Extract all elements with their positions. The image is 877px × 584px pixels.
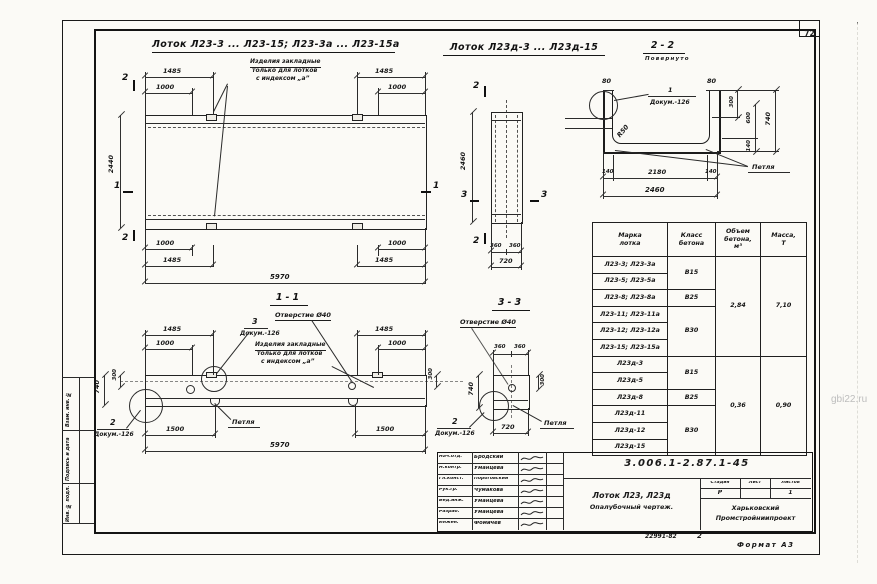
drawing-line [425, 72, 426, 115]
mark-cell: Л23-12; Л23-12а [593, 323, 668, 340]
detail-circle [589, 91, 618, 120]
staff-role: Нач.отд. [439, 455, 471, 460]
drawing-line [700, 498, 811, 499]
drawing-line [357, 330, 358, 375]
drawing-line [437, 496, 563, 497]
mark-cell: Л23д-5 [593, 373, 668, 390]
embed-plate [206, 114, 217, 121]
drawing-line [717, 151, 779, 152]
dim-360: 360 [494, 345, 505, 351]
drawing-line [145, 335, 213, 336]
col-header-mark: Марка лотка [593, 223, 668, 257]
loop-label: Петля [544, 419, 567, 427]
drawing-line [700, 488, 811, 489]
staff-name: Уманцева [474, 466, 517, 471]
dim-300: 300 [541, 374, 547, 385]
dim-1000: 1000 [156, 240, 174, 247]
drawing-line [425, 228, 426, 284]
drawing-line [437, 463, 563, 464]
embed-note-line2: только для лотков [252, 67, 317, 75]
dim-140: 140 [747, 140, 753, 151]
mass-cell: 7,10 [761, 257, 807, 357]
drawing-line [563, 478, 811, 479]
drawing-line [133, 230, 135, 241]
title-section-2-2-note: Повернуто [645, 56, 690, 63]
drawing-line [521, 479, 543, 482]
drawing-line [521, 512, 543, 515]
drawing-line [478, 375, 479, 408]
drawing-line [148, 127, 425, 128]
drawing-line [145, 249, 192, 250]
drawing-line [737, 90, 738, 118]
drawing-line [521, 501, 543, 504]
drawing-line [493, 433, 528, 434]
staff-role: Разраб. [439, 510, 471, 515]
hole-label: Отверстие Ø40 [275, 311, 331, 321]
drawing-line [120, 115, 121, 228]
sheet-number: 72 [804, 29, 814, 38]
drawing-line [484, 233, 486, 244]
stamp-inv-podl: Инв. № подл. [66, 486, 72, 522]
embed-plate [352, 223, 363, 230]
section-mark-2: 2 [473, 82, 479, 91]
drawing-line [357, 266, 425, 267]
drawing-line [145, 266, 213, 267]
mark-cell: Л23д-11 [593, 406, 668, 423]
signature-scribble [520, 455, 544, 462]
dim-740: 740 [765, 112, 772, 126]
dim-2180: 2180 [648, 169, 666, 176]
drawing-line [521, 523, 543, 526]
drawing-line [484, 86, 486, 97]
section-mark-1: 1 [114, 182, 120, 191]
staff-name: Бродский [474, 455, 517, 460]
drawing-line [378, 93, 425, 94]
table-row: Л23д-3В150,360,90 [593, 356, 807, 373]
staff-role: Вед.инж. [439, 499, 471, 504]
drawing-line [521, 222, 522, 270]
signature-scribble [520, 510, 544, 517]
drawing-line [123, 191, 133, 193]
drawing-line [603, 196, 717, 197]
drawing-line [748, 172, 790, 173]
dim-300: 300 [113, 369, 119, 380]
mark-cell: Л23-8; Л23-8а [593, 290, 668, 307]
col-header-volume: Объем бетона, м³ [716, 223, 761, 257]
dim-140: 140 [705, 170, 716, 176]
dim-1485: 1485 [163, 257, 181, 264]
loop-label: Петля [232, 418, 255, 426]
mark-cell: Л23-15; Л23-15а [593, 339, 668, 356]
section-mark-3: 3 [461, 191, 467, 200]
dim-1485: 1485 [375, 68, 393, 75]
doc-ref: Докум.-126 [650, 99, 690, 107]
class-cell: В25 [668, 290, 716, 307]
drawing-line [470, 200, 479, 202]
staff-role: Гл.конст. [439, 477, 471, 482]
sheet-label: Лист [741, 481, 769, 486]
drawing-line [145, 77, 213, 78]
mark-cell: Л23д-8 [593, 389, 668, 406]
drawing-line [436, 375, 437, 387]
drawing-line [145, 398, 425, 399]
sheets-value: 1 [771, 490, 810, 496]
drawing-line [491, 267, 521, 268]
dim-5970: 5970 [270, 274, 289, 281]
dim-1485: 1485 [163, 326, 181, 333]
drawing-line [437, 474, 563, 475]
drawing-line [145, 349, 192, 350]
dim-360: 360 [514, 345, 525, 351]
dim-1485: 1485 [375, 326, 393, 333]
title-section-1-1: 1-1 [270, 293, 308, 306]
stamp-vzam-inv: Взам. инв. № [66, 381, 72, 427]
volume-cell: 0,36 [716, 356, 761, 456]
concrete-table: Марка лотка Класс бетона Объем бетона, м… [592, 222, 807, 456]
drawing-line [145, 451, 425, 452]
drawing-line [603, 178, 717, 179]
drawing-line [213, 330, 214, 375]
drawing-type: Опалубочный чертеж. [565, 504, 698, 510]
embed-note-line2: только для лотков [257, 350, 322, 358]
table-row: Л23-3; Л23-3аВ152,847,10 [593, 257, 807, 274]
mark-cell: Л23-5; Л23-5а [593, 273, 668, 290]
drawing-line [145, 93, 192, 94]
drawing-line [775, 90, 776, 152]
dim-140: 140 [602, 170, 613, 176]
drawing-line [378, 249, 425, 250]
doc-ref: Докум.-126 [94, 431, 134, 439]
drawing-line [357, 72, 358, 115]
dim-740: 740 [94, 380, 101, 394]
drawing-line [511, 351, 512, 357]
drawing-line [355, 435, 425, 436]
dim-740: 740 [468, 382, 475, 396]
drawing-line [437, 507, 563, 508]
drawing-line [517, 115, 518, 222]
drawing-line [145, 123, 425, 124]
section-mark-1: 1 [433, 182, 439, 191]
drawing-line [79, 377, 80, 523]
staff-name: Чумакова [474, 488, 517, 493]
drawing-line [521, 468, 543, 471]
hole-circle [186, 385, 195, 394]
stage-value: Р [701, 490, 739, 496]
drawing-line [62, 377, 94, 378]
doc-ref: Докум.-126 [435, 430, 475, 438]
drawing-line [145, 219, 425, 220]
product-title: Лоток Л23, Л23д [565, 492, 698, 500]
col-header-mass: Масса, Т [761, 223, 807, 257]
dim-80: 80 [602, 78, 611, 85]
drawing-line [62, 430, 94, 431]
signature-scribble [520, 466, 544, 473]
org-name-line2: Промстройниипроект [700, 515, 811, 521]
class-cell: В15 [668, 356, 716, 389]
callout-number: 2 [452, 418, 458, 426]
drawing-line [495, 115, 496, 222]
embed-plate [206, 223, 217, 230]
sheets-label: Листов [771, 481, 810, 486]
section-mark-3: 3 [541, 191, 547, 200]
drawing-line [357, 335, 425, 336]
drawing-line [145, 435, 215, 436]
embed-note-line3: с индексом „а” [261, 358, 314, 366]
drawing-line [506, 249, 507, 255]
drawing-line [437, 428, 471, 429]
format-label: Формат А3 [737, 541, 795, 550]
hole-circle [508, 384, 516, 392]
callout-number: 2 [110, 419, 116, 427]
drawing-line [717, 90, 779, 91]
dim-300: 300 [429, 368, 435, 379]
title-section-2-2: 2-2 [643, 41, 685, 54]
drawing-line [378, 349, 425, 350]
dim-720: 720 [501, 424, 515, 431]
dim-1000: 1000 [388, 240, 406, 247]
title-section-3-3: 3-3 [492, 298, 530, 311]
dim-1000: 1000 [156, 84, 174, 91]
class-cell: В15 [668, 257, 716, 290]
drawing-line [192, 345, 193, 375]
dim-1000: 1000 [388, 84, 406, 91]
mass-cell: 0,90 [761, 356, 807, 456]
drawing-line [528, 350, 529, 375]
mark-cell: Л23д-12 [593, 422, 668, 439]
staff-role: Н.контр. [439, 466, 471, 471]
callout-number: 3 [252, 318, 258, 326]
drawing-line [700, 478, 701, 530]
staff-role: Инжен. [439, 521, 471, 526]
section-mark-2: 2 [473, 237, 479, 246]
drawing-line [755, 104, 756, 152]
sheet-number-box: 72 [799, 20, 820, 37]
drawing-line [472, 112, 473, 222]
staff-name: Фомичев [474, 521, 517, 526]
signature-scribble [520, 521, 544, 528]
stage-label: Стадия [701, 481, 739, 486]
dim-1500: 1500 [166, 426, 184, 433]
title-view-d: Лоток Л23д-3 ... Л23д-15 [443, 43, 605, 56]
dim-600: 600 [747, 112, 753, 123]
section-mark-2: 2 [122, 234, 128, 243]
dim-1500: 1500 [376, 426, 394, 433]
drawing-line [120, 381, 463, 382]
staff-name: Уманцева [474, 510, 517, 515]
stamp-podpis-data: Подпись и дата [66, 433, 72, 481]
drawing-line [145, 228, 146, 284]
signature-scribble [520, 477, 544, 484]
drawing-line [538, 375, 539, 389]
drawing-line [648, 96, 696, 97]
signature-scribble [520, 488, 544, 495]
dim-2440: 2440 [108, 155, 115, 173]
dim-2460: 2460 [460, 152, 467, 170]
drawing-line [506, 100, 507, 238]
org-name-line1: Харьковский [700, 505, 811, 511]
staff-role: Рук.гр. [439, 488, 471, 493]
dim-300: 300 [730, 96, 736, 107]
drawing-line [62, 523, 94, 524]
drawing-line [145, 283, 425, 284]
dim-80: 80 [707, 78, 716, 85]
section-mark-2: 2 [122, 74, 128, 83]
drawing-line [228, 427, 260, 428]
drawing-line [491, 222, 492, 270]
hole-circle [348, 382, 356, 390]
embed-plate [352, 114, 363, 121]
staff-name: Уманцева [474, 499, 517, 504]
drawing-line [425, 330, 426, 375]
drawing-line [521, 490, 543, 493]
detail-circle [479, 391, 509, 421]
drawing-line [521, 457, 543, 460]
drawing-line [565, 128, 612, 129]
drawing-sheet: 72 Взам. инв. № Подпись и дата Инв. № по… [0, 0, 877, 584]
drawing-line [706, 90, 717, 91]
drawing-line [104, 375, 105, 405]
drawing-line [421, 191, 431, 193]
drawing-line [62, 483, 94, 484]
loop-label: Петля [752, 163, 775, 171]
drawing-line [437, 518, 563, 519]
dim-1485: 1485 [375, 257, 393, 264]
doc-number: 3.006.1-2.87.1-45 [563, 459, 811, 469]
dim-5970: 5970 [270, 442, 289, 449]
drawing-line [244, 328, 268, 329]
dim-1485: 1485 [163, 68, 181, 75]
title-view-main: Лоток Л23-3 ... Л23-15; Л23-3а ... Л23-1… [152, 40, 395, 53]
embed-note-line3: с индексом „а” [256, 75, 309, 83]
drawing-line [357, 77, 425, 78]
drawing-line [97, 429, 129, 430]
dim-720: 720 [499, 258, 513, 265]
dim-1000: 1000 [388, 340, 406, 347]
footer-number: 2 [697, 532, 702, 541]
footer-code: 22991-82 [645, 533, 677, 541]
volume-cell: 2,84 [716, 257, 761, 357]
drawing-line [120, 375, 121, 387]
dim-360: 360 [509, 244, 520, 250]
drawing-line [712, 117, 740, 118]
mark-cell: Л23д-3 [593, 356, 668, 373]
drawing-line [722, 138, 758, 139]
callout-number: 1 [668, 87, 673, 94]
drawing-line [145, 330, 146, 375]
dim-2460: 2460 [645, 187, 664, 194]
hole-label: Отверстие Ø40 [460, 318, 516, 328]
mark-cell: Л23-3; Л23-3а [593, 257, 668, 274]
drawing-line: Марка лотка Класс бетона Объем бетона, м… [593, 223, 807, 456]
table-header-row: Марка лотка Класс бетона Объем бетона, м… [593, 223, 807, 257]
class-cell: В25 [668, 389, 716, 406]
drawing-line [530, 200, 539, 202]
class-cell: В30 [668, 406, 716, 456]
dim-1000: 1000 [156, 340, 174, 347]
drawing-line [540, 428, 574, 429]
drawing-line [437, 485, 563, 486]
drawing-line [148, 215, 425, 216]
detail-circle [201, 366, 227, 392]
class-cell: В30 [668, 306, 716, 356]
col-header-class: Класс бетона [668, 223, 716, 257]
plan-view-body [145, 115, 427, 230]
drawing-line [133, 80, 135, 91]
scan-edge [857, 22, 858, 563]
mark-cell: Л23-11; Л23-11а [593, 306, 668, 323]
watermark: gbi22.ru [831, 395, 867, 405]
signature-scribble [520, 499, 544, 506]
staff-name: Пороговский [474, 477, 517, 482]
